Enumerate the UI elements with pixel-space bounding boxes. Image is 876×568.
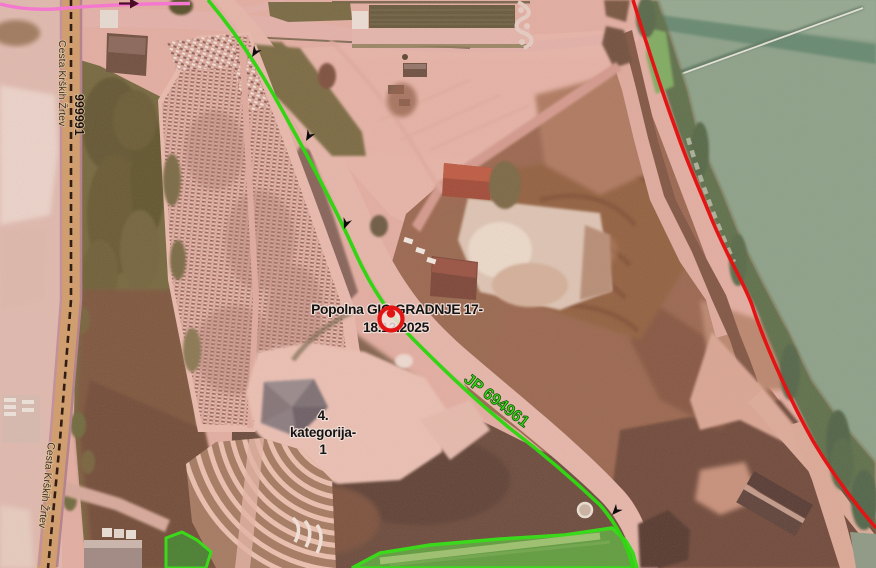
svg-text:4.: 4. — [318, 408, 329, 423]
svg-text:kategorija-: kategorija- — [290, 425, 356, 440]
svg-text:Cesta Krških Žrtev: Cesta Krških Žrtev — [56, 40, 69, 127]
svg-text:999991: 999991 — [72, 94, 86, 136]
svg-text:1: 1 — [319, 442, 327, 457]
